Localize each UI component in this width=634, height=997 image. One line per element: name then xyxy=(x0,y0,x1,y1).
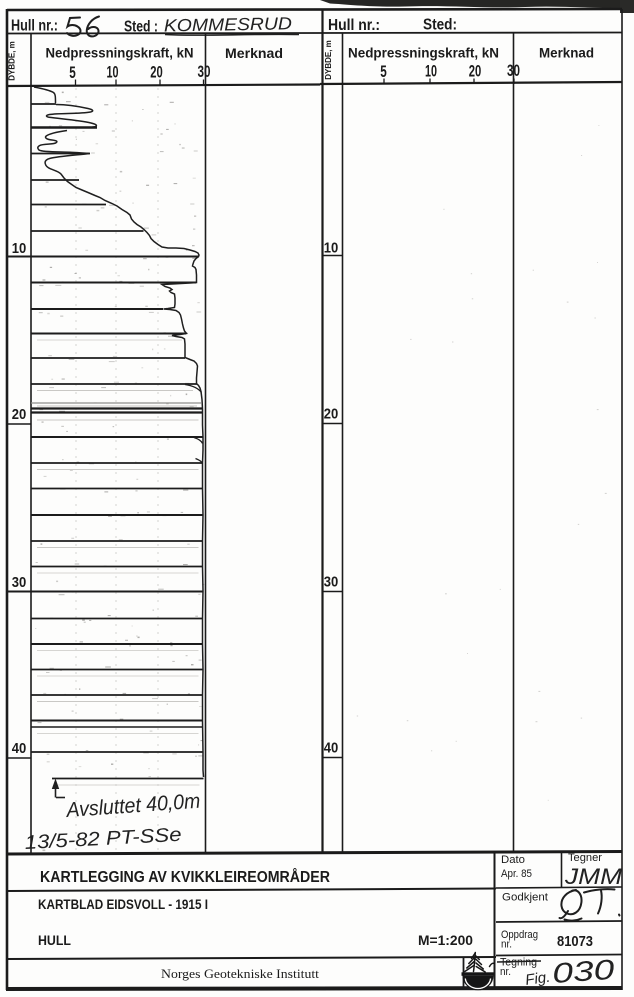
svg-text:Apr. 85: Apr. 85 xyxy=(501,868,532,880)
svg-text:30: 30 xyxy=(324,575,339,591)
svg-text:nr.: nr. xyxy=(500,966,511,978)
svg-text:Merknad: Merknad xyxy=(539,45,594,61)
svg-text:20: 20 xyxy=(469,62,482,81)
svg-text:40: 40 xyxy=(324,741,339,757)
svg-text:10: 10 xyxy=(12,241,27,257)
svg-text:30: 30 xyxy=(198,62,211,81)
svg-text:5: 5 xyxy=(69,63,76,82)
svg-text:Hull nr.:: Hull nr.: xyxy=(11,18,58,35)
svg-text:030: 030 xyxy=(551,954,616,989)
svg-text:Nedpressningskraft, kN: Nedpressningskraft, kN xyxy=(348,45,499,61)
svg-text:DYBDE, m: DYBDE, m xyxy=(324,40,333,80)
svg-text:Norges Geotekniske Institutt: Norges Geotekniske Institutt xyxy=(161,967,320,981)
svg-text:HULL: HULL xyxy=(38,933,71,948)
svg-text:20: 20 xyxy=(12,407,27,423)
svg-text:M=1:200: M=1:200 xyxy=(418,933,473,948)
svg-text:nr.: nr. xyxy=(501,939,512,951)
svg-text:40: 40 xyxy=(12,741,27,757)
svg-text:JMM: JMM xyxy=(564,864,623,889)
svg-text:KARTBLAD EIDSVOLL - 1915 I: KARTBLAD EIDSVOLL - 1915 I xyxy=(38,897,208,912)
svg-text:10: 10 xyxy=(107,63,119,82)
svg-text:20: 20 xyxy=(150,63,163,82)
svg-text:30: 30 xyxy=(12,575,27,591)
svg-text:Nedpressningskraft, kN: Nedpressningskraft, kN xyxy=(46,45,194,61)
svg-text:KARTLEGGING AV KVIKKLEIREOMRÅD: KARTLEGGING AV KVIKKLEIREOMRÅDER xyxy=(40,867,330,886)
svg-text:Tegner: Tegner xyxy=(568,852,602,864)
svg-text:DYBDE, m: DYBDE, m xyxy=(8,41,17,81)
svg-text:30: 30 xyxy=(507,61,520,80)
svg-text:Fig.: Fig. xyxy=(524,969,551,989)
svg-text:Sted :: Sted : xyxy=(124,19,158,36)
svg-text:Godkjent: Godkjent xyxy=(502,892,548,904)
svg-text:Merknad: Merknad xyxy=(225,45,283,61)
svg-text:20: 20 xyxy=(324,407,339,423)
svg-text:81073: 81073 xyxy=(557,933,593,950)
svg-text:KOMMESRUD: KOMMESRUD xyxy=(164,13,293,35)
svg-text:10: 10 xyxy=(425,62,437,81)
svg-text:5: 5 xyxy=(380,62,387,81)
svg-text:10: 10 xyxy=(324,241,339,257)
svg-text:Dato: Dato xyxy=(501,854,525,866)
svg-text:Hull nr.:: Hull nr.: xyxy=(328,17,380,34)
svg-text:Sted:: Sted: xyxy=(423,17,457,34)
